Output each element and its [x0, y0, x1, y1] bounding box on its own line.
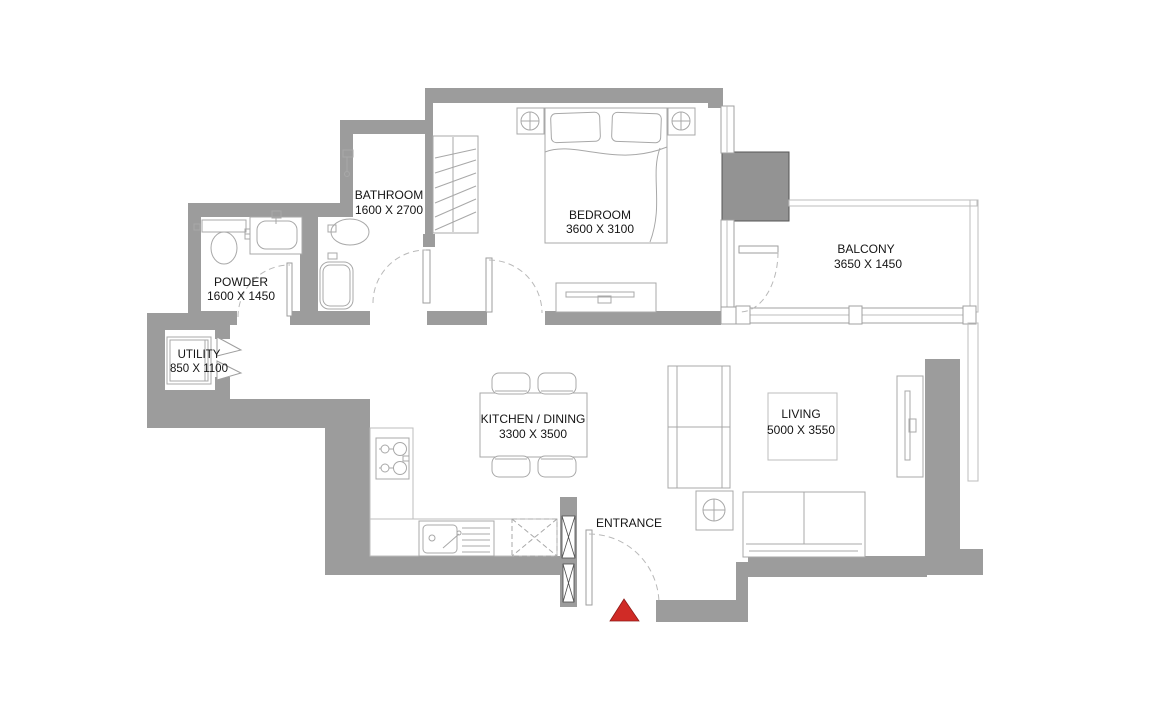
label-balcony-dims: 3650 X 1450 [834, 257, 902, 271]
bathroom-fixtures [320, 150, 369, 309]
living-furniture [668, 366, 923, 557]
powder-basin [257, 221, 297, 249]
wall-utility-stub-top [215, 313, 230, 339]
label-living-dims: 5000 X 3550 [767, 423, 835, 437]
bathroom-sink [331, 219, 369, 245]
wall-top-right-stub [708, 88, 723, 108]
balcony-right-rail [970, 200, 978, 312]
wall-step-vertical [736, 562, 748, 622]
label-entrance: ENTRANCE [596, 516, 662, 530]
wall-powder-top [188, 203, 353, 217]
label-bedroom-dims: 3600 X 3100 [566, 222, 634, 236]
label-utility-dims: 850 X 1100 [170, 363, 228, 375]
label-bathroom-dims: 1600 X 2700 [355, 203, 423, 217]
label-powder-dims: 1600 X 1450 [207, 289, 275, 303]
exterior-edge-right [968, 323, 978, 481]
bed-pillow [611, 112, 661, 143]
label-bathroom-name: BATHROOM [355, 188, 423, 202]
wall-bathroom-top [340, 120, 433, 134]
label-living-name: LIVING [781, 407, 820, 421]
label-kitchen-name: KITCHEN / DINING [481, 412, 586, 426]
bedroom-door-leaf [486, 258, 492, 312]
wall-living-right [925, 359, 960, 556]
toilet-bowl [211, 232, 237, 264]
bedroom-furniture [433, 108, 695, 312]
stove-burner-small [381, 464, 389, 472]
wall-thick-vertical [325, 428, 370, 557]
stove-burner-large [394, 443, 407, 456]
bathtub [320, 262, 353, 309]
powder-fixtures [194, 211, 302, 264]
wall-powder-left [188, 217, 201, 320]
stove-knob [403, 456, 409, 461]
wall-bedroom-bottom [545, 311, 721, 325]
wall-corridor-under-tub [300, 311, 370, 325]
toilet-cistern [202, 220, 246, 232]
wall-living-right-step [925, 549, 983, 575]
label-utility-name: UTILITY [178, 349, 221, 361]
balcony-window-mullion [963, 306, 976, 324]
wall-entrance-right [656, 600, 738, 622]
stove-burner-small [381, 445, 389, 453]
floor-plan: BATHROOM 1600 X 2700 BEDROOM 3600 X 3100… [0, 0, 1152, 728]
wall-top-bedroom [425, 88, 723, 103]
label-bedroom-name: BEDROOM [569, 208, 631, 222]
wall-bath-bed-divider [425, 103, 433, 234]
bathroom-door-leaf [423, 250, 430, 303]
balcony-column [722, 152, 789, 221]
kitchen-fixtures [370, 373, 587, 556]
bathroom-door-swing [373, 250, 426, 303]
wall-kitchen-bottom [325, 556, 577, 575]
tub-faucet [328, 253, 337, 259]
stove-burner-large [394, 462, 407, 475]
entrance-door-swing [589, 534, 659, 604]
bedroom-door-swing [489, 260, 542, 313]
entrance-marker [610, 599, 639, 621]
powder-door-leaf [287, 263, 292, 316]
balcony-door-swing [740, 252, 778, 312]
wall-end-block [721, 307, 737, 324]
wall-powder-right [300, 217, 318, 311]
wall-divider-stub [423, 234, 435, 247]
wall-utility-left [147, 313, 165, 403]
label-powder-name: POWDER [214, 275, 268, 289]
balcony-window-mullion [849, 306, 862, 324]
balcony-top-rail [789, 200, 977, 206]
floor-plan-canvas: BATHROOM 1600 X 2700 BEDROOM 3600 X 3100… [0, 0, 1152, 728]
balcony-window-mullion [736, 306, 750, 324]
balcony-door-leaf [739, 246, 778, 253]
utility-bifold-leaf [217, 337, 241, 356]
label-kitchen-dims: 3300 X 3500 [499, 427, 567, 441]
entrance-door-leaf [586, 530, 592, 605]
wall-thick-horizontal [147, 399, 370, 428]
bed-pillow [551, 112, 601, 143]
wall-corridor-right-of-bathdoor [427, 311, 487, 325]
label-balcony-name: BALCONY [837, 242, 894, 256]
wall-living-bottom [748, 556, 927, 577]
